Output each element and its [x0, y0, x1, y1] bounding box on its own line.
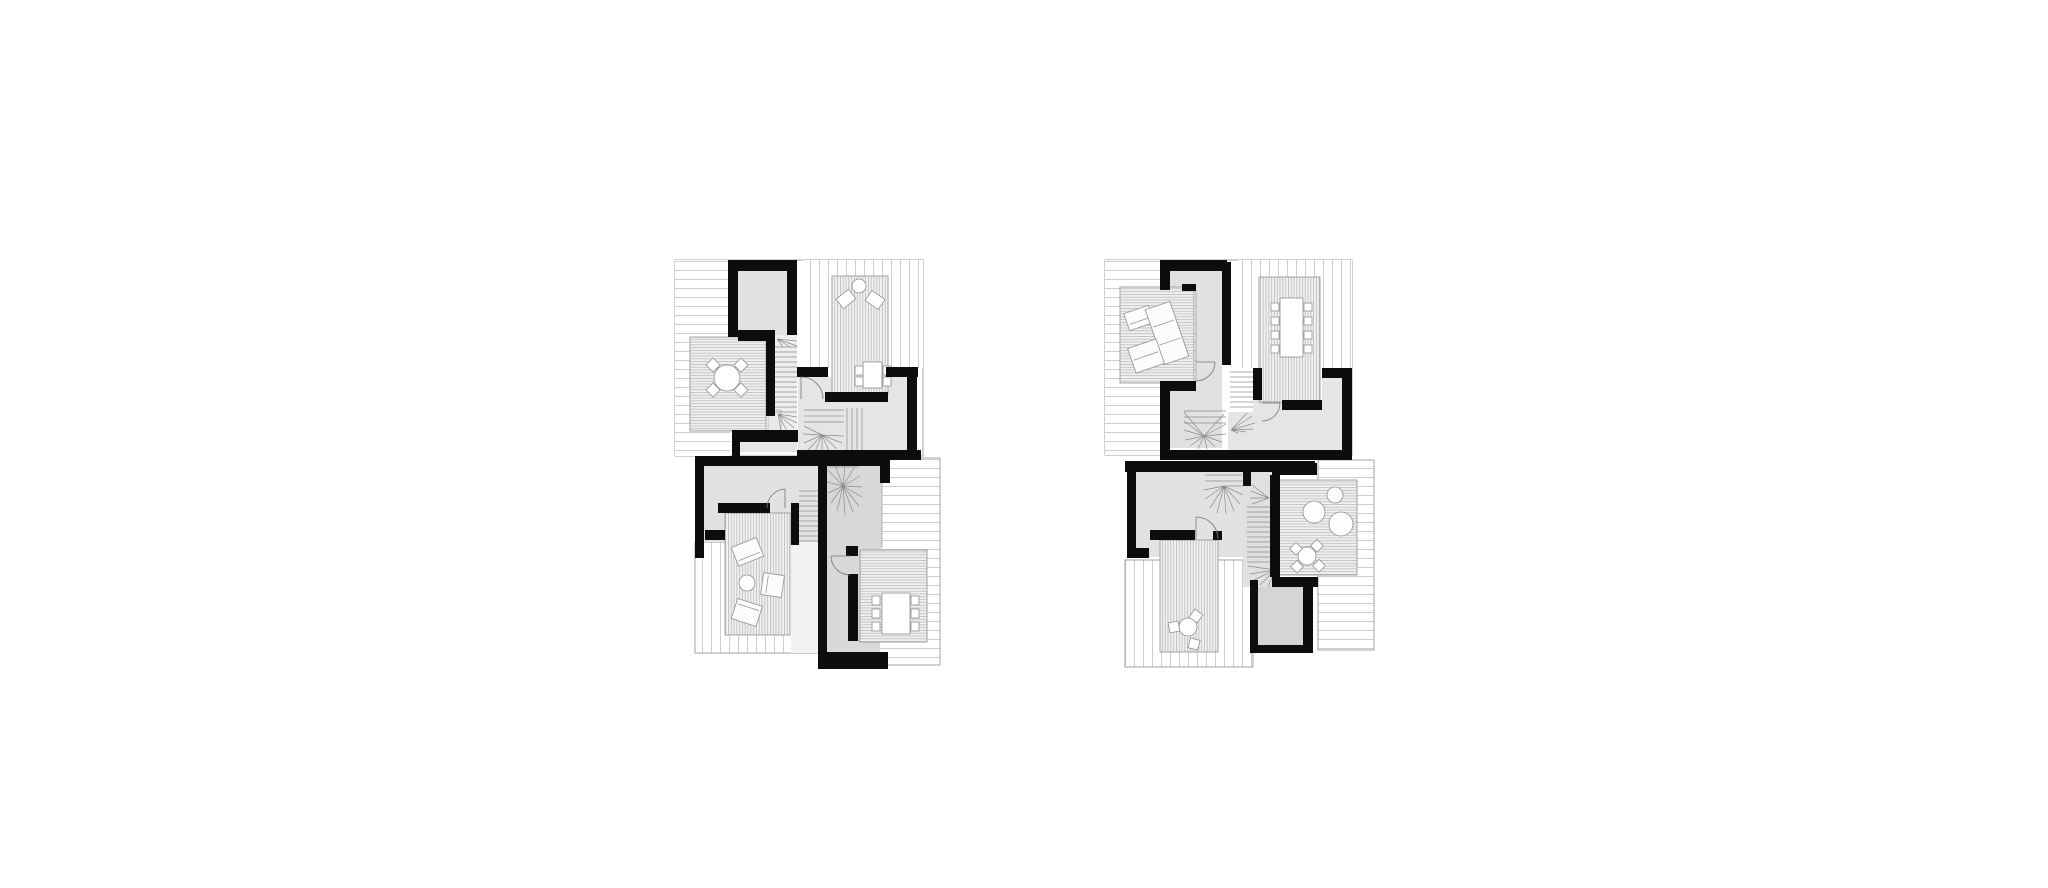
- wall: [1160, 260, 1227, 271]
- chair: [1168, 621, 1180, 633]
- chair: [872, 609, 880, 618]
- wall: [1322, 368, 1352, 378]
- chair: [872, 596, 880, 605]
- dining-table: [863, 362, 882, 388]
- wall: [1182, 284, 1196, 291]
- wall: [791, 503, 799, 545]
- chair: [1271, 345, 1279, 353]
- chair: [1304, 303, 1312, 311]
- wall: [846, 546, 858, 556]
- wall: [728, 260, 738, 337]
- wall: [695, 456, 704, 558]
- wall: [825, 392, 888, 402]
- wall: [1150, 530, 1195, 540]
- wall: [695, 456, 885, 466]
- utility-floor: [1258, 587, 1303, 645]
- wall: [848, 574, 858, 641]
- planter: [1303, 501, 1325, 523]
- drawing-canvas: [0, 0, 2048, 888]
- wall: [728, 260, 797, 271]
- dining-table: [1280, 298, 1303, 357]
- wall: [1270, 475, 1280, 577]
- room-upper: [738, 271, 787, 335]
- planter: [1327, 487, 1343, 503]
- chair: [911, 596, 919, 605]
- wall: [1127, 548, 1149, 558]
- wall: [1303, 587, 1313, 653]
- side-table: [852, 279, 866, 293]
- wall: [732, 430, 798, 442]
- wall: [1160, 381, 1170, 451]
- wall: [732, 442, 740, 456]
- corridor-floor: [827, 461, 882, 556]
- wall: [1243, 463, 1251, 486]
- chair: [1271, 331, 1279, 339]
- coffee-table: [739, 575, 755, 591]
- wall: [1272, 463, 1317, 475]
- wall: [1160, 260, 1170, 290]
- wall: [1272, 577, 1318, 587]
- hall-floor: [740, 442, 797, 452]
- wall: [1222, 262, 1231, 365]
- floor-plan-left: [675, 260, 940, 669]
- wall: [1342, 378, 1352, 452]
- chair: [1304, 331, 1312, 339]
- wall: [705, 530, 725, 540]
- wall: [718, 503, 770, 513]
- chair: [1271, 303, 1279, 311]
- wall: [880, 458, 890, 483]
- wall: [787, 262, 797, 335]
- chair: [855, 377, 863, 386]
- wall: [766, 335, 775, 416]
- round-table: [714, 365, 740, 391]
- wall: [818, 652, 888, 669]
- wall: [818, 463, 827, 655]
- chair: [911, 609, 919, 618]
- wall: [1253, 368, 1262, 400]
- plan-svg: [0, 0, 2048, 888]
- chair: [883, 377, 891, 386]
- dining-table: [882, 593, 910, 634]
- chair: [1188, 638, 1200, 650]
- floor-plan-right: [1105, 260, 1374, 667]
- planter: [1329, 512, 1353, 536]
- chair: [855, 366, 863, 375]
- wall: [797, 367, 828, 377]
- wall: [1250, 580, 1258, 653]
- chair: [911, 622, 919, 631]
- chair: [1271, 317, 1279, 325]
- wall: [886, 367, 918, 377]
- armchair: [761, 573, 785, 598]
- chair: [872, 622, 880, 631]
- plans-root: [675, 260, 1374, 669]
- wall: [1127, 461, 1136, 551]
- wall: [1282, 400, 1322, 410]
- chair: [1304, 317, 1312, 325]
- wall: [1250, 645, 1313, 653]
- chair: [1304, 345, 1312, 353]
- wall: [907, 377, 917, 452]
- wall: [1160, 450, 1352, 460]
